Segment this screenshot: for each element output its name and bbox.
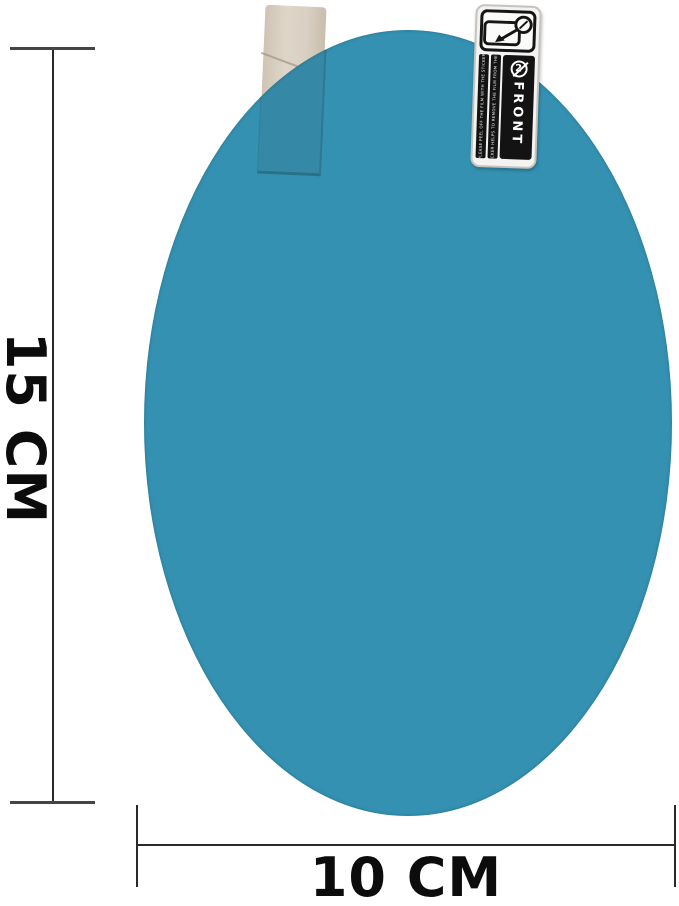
height-dimension-label: 15 CM (0, 328, 52, 528)
front-bar: 2 FRONT (499, 55, 535, 160)
peel-tab-overlap (257, 30, 329, 176)
peel-icon-box (479, 9, 536, 53)
peel-arrow-icon (482, 14, 533, 48)
front-label: FRONT (508, 81, 525, 146)
height-dimension-tick-bottom (10, 801, 95, 804)
product-dimension-image: PLEASE PEEL OFF THE FILM WITH THE STICKE… (0, 0, 679, 906)
sticker-small-print-2-text: THIS STICKER HELPS TO REMOVE THE FILM FR… (490, 54, 499, 158)
sticker-body: PLEASE PEEL OFF THE FILM WITH THE STICKE… (475, 54, 535, 160)
width-dimension-label: 10 CM (137, 851, 675, 905)
circled-number-icon: 2 (510, 60, 528, 78)
height-dimension-tick-top (10, 47, 95, 50)
sticker-small-print-1-text: PLEASE PEEL OFF THE FILM WITH THE STICKE… (478, 54, 486, 158)
film-oval (144, 30, 672, 816)
instruction-sticker: PLEASE PEEL OFF THE FILM WITH THE STICKE… (470, 4, 542, 169)
